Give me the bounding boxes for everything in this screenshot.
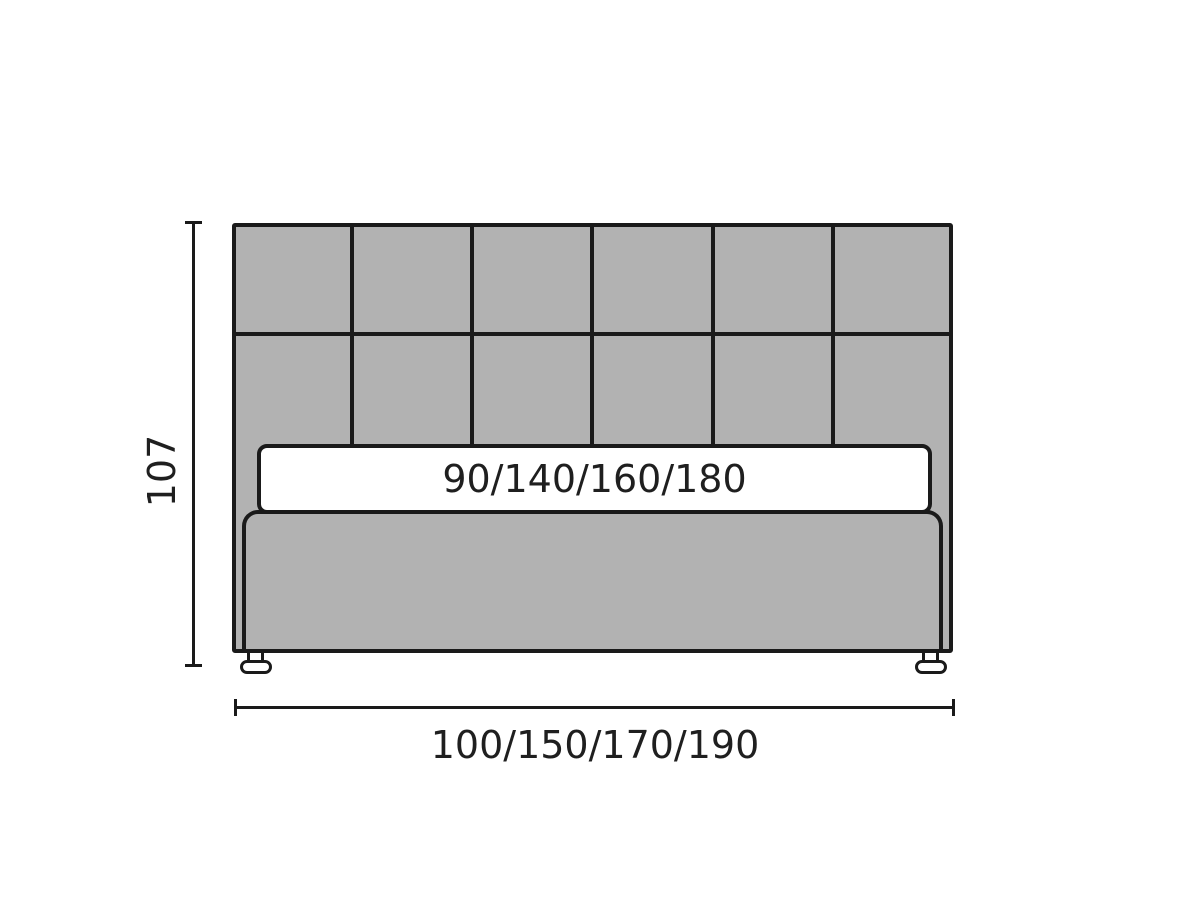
mattress: 90/140/160/180	[257, 444, 932, 514]
height-dimension-label: 107	[143, 435, 181, 508]
headboard-grid-hline	[236, 332, 949, 336]
mattress-size-label: 90/140/160/180	[442, 460, 746, 498]
width-dimension-label: 100/150/170/190	[431, 726, 760, 764]
height-dimension-tick-bottom	[185, 664, 202, 667]
diagram-canvas: 90/140/160/180 107 100/150/170/190	[0, 0, 1200, 900]
width-dimension-tick-left	[234, 699, 237, 716]
width-dimension-tick-right	[952, 699, 955, 716]
width-dimension-line	[234, 706, 955, 709]
bed-base	[242, 510, 943, 653]
height-dimension-tick-top	[185, 221, 202, 224]
right-foot-pad	[915, 660, 947, 674]
left-foot-pad	[240, 660, 272, 674]
height-dimension-line	[192, 223, 195, 667]
